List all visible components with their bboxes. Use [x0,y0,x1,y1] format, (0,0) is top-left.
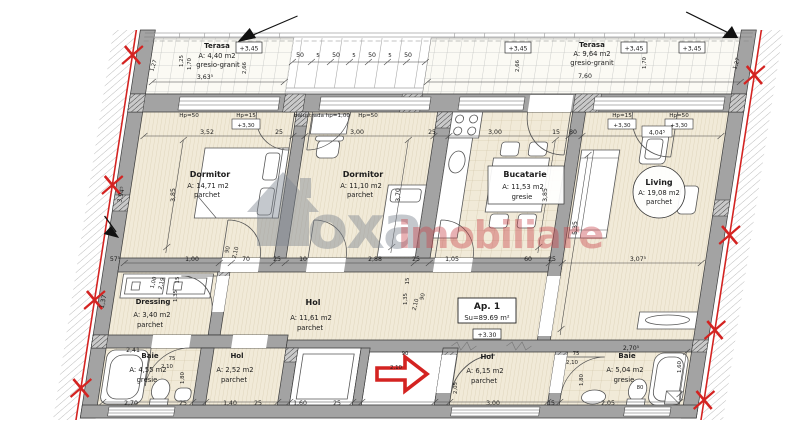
hp15-label: Hp=15 [612,113,632,119]
dim: 2,10 [566,360,579,366]
hol-floor-label: parchet [297,324,323,332]
hp50-label: Hp=50 [669,113,689,119]
dim: 25 [428,129,436,136]
hol3-area: A: 6,15 m2 [466,367,503,375]
dim: 25 [179,400,187,407]
dim: 15 [547,400,555,407]
dim: 2,10 [390,365,403,371]
dim: 2,88 [368,256,382,263]
hol-name: Hol [306,298,321,307]
dim: 50 [404,52,412,59]
dormitor1-area: A: 14,71 m2 [187,182,229,190]
dim: 5 [352,53,355,59]
dim: 75 [573,351,580,357]
hol3-name: Hol [480,353,493,361]
hol2-name: Hol [230,352,243,360]
dim: 1,35 [403,293,409,305]
dim: 1,60 [677,360,683,373]
living-area: A: 19,08 m2 [638,189,680,197]
dim: 25 [412,256,420,263]
balustrade-label: balustrada hp=1,00 [294,113,350,119]
dim: 90 [402,351,409,357]
floor-plan-canvas: { "watermark": { "gray": "oxa", "red": "… [0,0,800,429]
living-name: Living [645,178,672,187]
dim: 57⁵ [110,256,121,263]
floor-plan-drawing: oxa imobiliare Terasa A: 4,40 m2 gresio-… [0,0,800,429]
terasa-left-area: A: 4,40 m2 [198,52,235,60]
dormitor2-floor-label: parchet [347,191,373,199]
living-floor-label: parchet [646,198,672,206]
dim: 3,70 [395,188,402,202]
hp50-label: Hp=50 [179,113,199,119]
dim: 1,35 [173,290,179,302]
apartment-level: +3.30 [478,332,497,339]
elev-345: +3,45 [240,46,259,53]
dormitor1-name: Dormitor [190,170,230,179]
dim: 1,25 [179,55,185,67]
dim: 1,40 [223,400,237,407]
dim: 80 [569,129,577,136]
elev-345: +3,45 [509,46,528,53]
hol2-area: A: 2,52 m2 [216,366,253,374]
dressing-floor-label: parchet [137,321,163,329]
dim: 3,00 [350,129,364,136]
dormitor2-name: Dormitor [343,170,383,179]
dim: 1,70 [187,57,193,70]
dim: 60 [524,256,532,263]
dim: 2,66 [242,61,248,74]
dim: 2,10 [161,364,174,370]
dim: 80 [637,385,644,391]
dim: 1,80 [180,371,186,384]
dim: 70 [242,256,250,263]
dim: 3,00 [486,400,500,407]
dim: 25 [254,400,262,407]
dim: 15 [405,278,411,285]
dim: 15 [552,129,560,136]
dim: 1,00 [185,256,199,263]
hol2-floor-label: parchet [221,376,247,384]
terasa-left-name: Terasa [204,42,230,50]
dim: 2,70 [124,400,138,407]
terasa-right-area: A: 9,64 m2 [573,50,610,58]
dim: 75 [169,356,176,362]
baie1-name: Baie [141,352,158,360]
hp15-label: Hp=15 [236,113,256,119]
terasa-right-name: Terasa [579,41,605,49]
terasa-left-floor-label: gresio-granit [196,61,240,69]
dim: 4,04⁵ [649,130,666,137]
dim: 15 [175,277,181,284]
baie2-name: Baie [618,352,635,360]
dormitor2-area: A: 11,10 m2 [340,182,382,190]
dressing-name: Dressing [136,298,171,306]
terasa-right-floor-label: gresio-granit [570,59,614,67]
hp50-label: Hp=50 [358,113,378,119]
dim: 3,52 [200,129,214,136]
hol3-floor-label: parchet [471,377,497,385]
dim: 2,66 [515,59,521,72]
hol-area: A: 11,61 m2 [290,314,332,322]
dim: 50 [368,52,376,59]
dim: 1,05 [445,256,459,263]
dim: 25 [548,256,556,263]
dim: 2,05 [453,382,459,394]
dim: 10 [299,256,307,263]
dim: 1,70 [642,56,648,69]
dim: 5 [388,53,391,59]
apartment-area: Su=89.69 m² [464,314,510,322]
elev-330: +3,30 [670,123,688,129]
baie2-floor-label: gresie [614,376,635,384]
dormitor1-floor-label: parchet [194,191,220,199]
hol3-floor [449,352,555,405]
bucatarie-name: Bucatarie [503,170,547,179]
dim: 3,00 [488,129,502,136]
dim: 5,35 [572,221,579,235]
dim: 2,41 [126,347,140,354]
dim: 3,85 [170,188,177,202]
baie1-floor-label: gresie [137,376,158,384]
dim: 3,63⁵ [197,74,214,81]
bucatarie-floor-label: gresie [512,193,533,201]
dressing-area: A: 3,40 m2 [133,311,170,319]
dim: 1,60 [293,400,307,407]
dim: 1,80 [579,373,585,386]
dim: 7,60 [578,73,592,80]
dim: 3,85 [542,188,549,202]
baie2-area: A: 5,04 m2 [606,366,643,374]
dim: 25 [275,129,283,136]
dim: 5 [316,53,319,59]
dim: 3,07⁵ [630,256,647,263]
apartment-name: Ap. 1 [474,302,500,312]
elev-345: +3,45 [625,46,644,53]
bucatarie-area: A: 11,53 m2 [502,183,544,191]
dim: 50 [296,52,304,59]
elev-345: +3,45 [683,46,702,53]
dim: 2,70⁵ [623,345,640,352]
dim: 50 [332,52,340,59]
rail-section-floor [285,38,431,94]
dim: 25 [273,256,281,263]
elev-330: +3,30 [613,123,631,129]
dim: 2,05 [601,400,615,407]
dim: 25 [333,400,341,407]
elev-330: +3,30 [237,123,255,129]
dressing-wardrobe [120,274,214,298]
